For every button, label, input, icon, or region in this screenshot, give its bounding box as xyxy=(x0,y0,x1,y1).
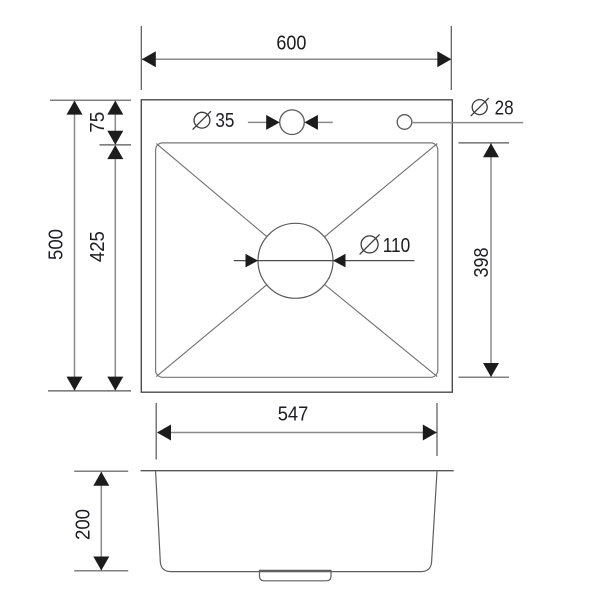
svg-text:75: 75 xyxy=(86,112,109,133)
svg-text:35: 35 xyxy=(215,109,234,132)
svg-text:28: 28 xyxy=(495,96,514,119)
svg-text:110: 110 xyxy=(383,234,411,257)
svg-text:200: 200 xyxy=(71,509,94,540)
svg-text:600: 600 xyxy=(276,31,306,54)
svg-text:425: 425 xyxy=(86,231,109,262)
svg-text:500: 500 xyxy=(45,229,68,260)
svg-text:547: 547 xyxy=(278,403,309,426)
svg-text:398: 398 xyxy=(470,248,493,278)
